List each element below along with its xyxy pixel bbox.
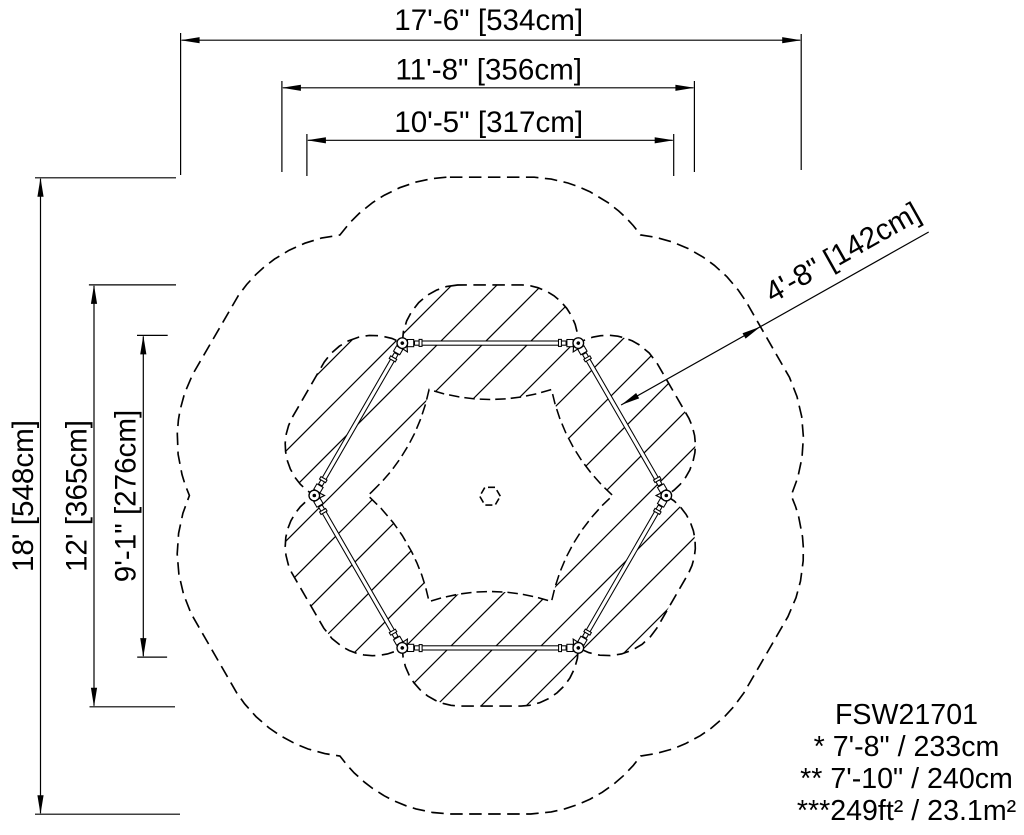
svg-text:* 7'-8" / 233cm: * 7'-8" / 233cm [814, 731, 1000, 763]
svg-text:17'-6" [534cm]: 17'-6" [534cm] [394, 4, 583, 37]
svg-text:10'-5" [317cm]: 10'-5" [317cm] [394, 106, 583, 139]
svg-text:9'-1" [276cm]: 9'-1" [276cm] [110, 410, 143, 582]
svg-text:11'-8" [356cm]: 11'-8" [356cm] [395, 54, 582, 87]
svg-text:12' [365cm]: 12' [365cm] [61, 420, 94, 572]
svg-text:FSW21701: FSW21701 [835, 699, 978, 731]
svg-text:18' [548cm]: 18' [548cm] [7, 420, 40, 572]
svg-text:** 7'-10" / 240cm: ** 7'-10" / 240cm [800, 763, 1013, 795]
svg-text:***249ft² / 23.1m²: ***249ft² / 23.1m² [797, 795, 1016, 827]
